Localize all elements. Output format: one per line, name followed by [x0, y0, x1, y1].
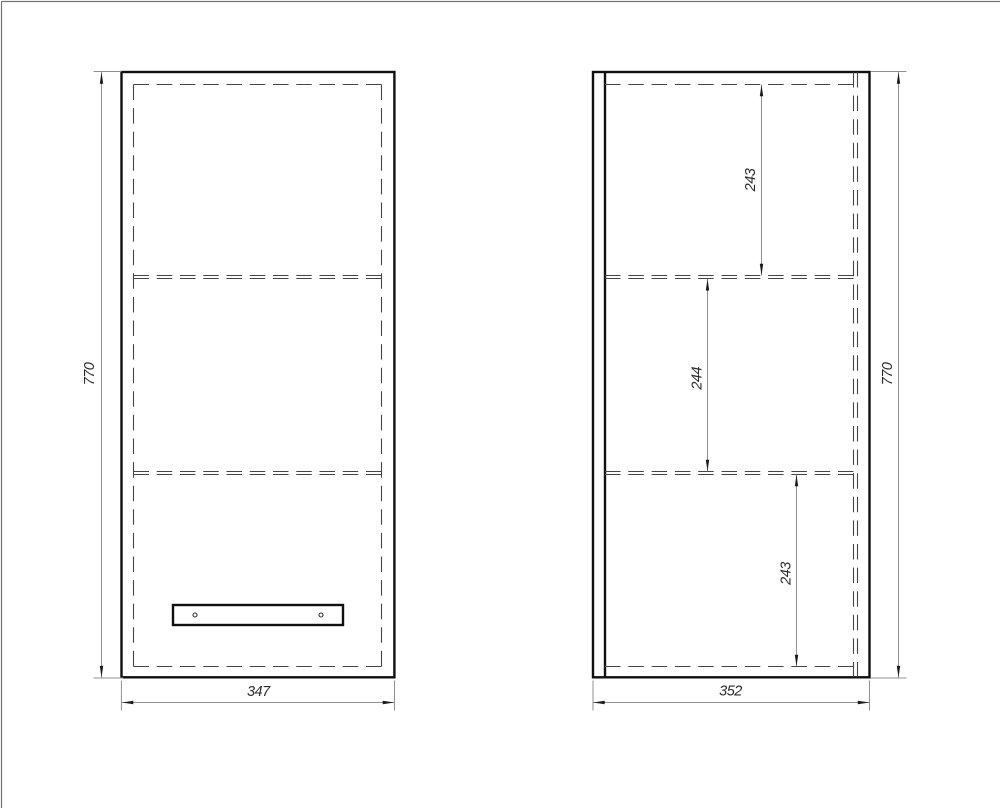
svg-text:352: 352	[719, 684, 742, 700]
svg-text:770: 770	[880, 362, 896, 385]
svg-text:347: 347	[247, 684, 271, 700]
svg-text:243: 243	[743, 168, 759, 192]
svg-text:243: 243	[778, 562, 794, 586]
svg-text:244: 244	[690, 367, 706, 391]
svg-text:770: 770	[82, 362, 98, 385]
